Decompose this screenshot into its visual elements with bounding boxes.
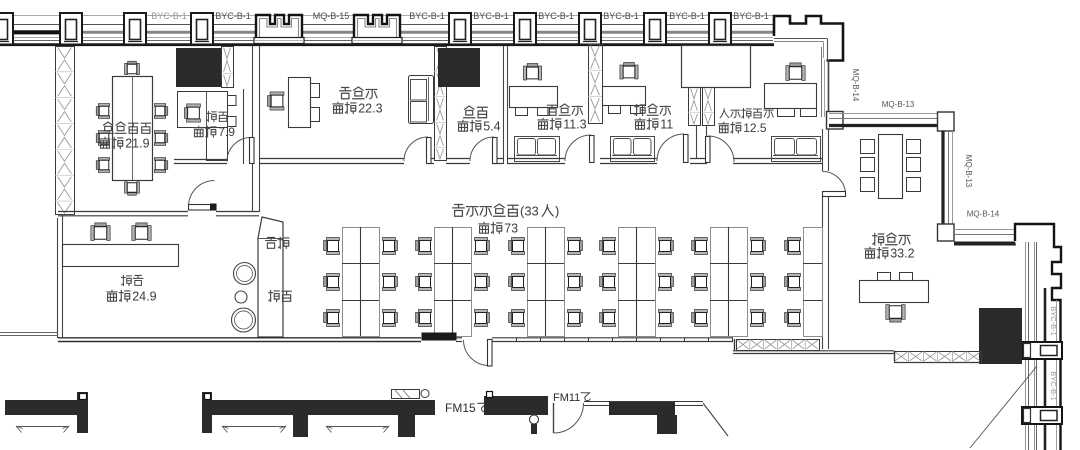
svg-text:22.3: 22.3 (358, 102, 382, 116)
svg-text:): ) (555, 204, 559, 219)
svg-text:BYC-B-1: BYC-B-1 (1049, 371, 1058, 401)
svg-text:BYC-B-1: BYC-B-1 (1049, 306, 1058, 336)
svg-text:33.2: 33.2 (890, 247, 914, 261)
svg-text:21.9: 21.9 (125, 137, 149, 151)
svg-text:BYC-B-1: BYC-B-1 (603, 11, 639, 21)
svg-text:BYC-B-1: BYC-B-1 (733, 11, 769, 21)
svg-text:5.4: 5.4 (483, 120, 500, 134)
svg-text:FM15: FM15 (445, 401, 476, 415)
svg-text:73: 73 (504, 222, 518, 236)
svg-text:12.5: 12.5 (743, 121, 767, 135)
svg-text:BYC-B-1: BYC-B-1 (215, 11, 251, 21)
svg-text:11.3: 11.3 (563, 118, 586, 132)
svg-text:MQ-B-15: MQ-B-15 (313, 11, 350, 21)
svg-text:MQ-B-13: MQ-B-13 (964, 155, 973, 188)
svg-text:BYC-B-1: BYC-B-1 (538, 11, 574, 21)
svg-text:BYC-B-1: BYC-B-1 (473, 11, 509, 21)
svg-text:11: 11 (660, 118, 673, 132)
svg-text:BYC-B-1: BYC-B-1 (151, 11, 187, 21)
svg-text:7.9: 7.9 (218, 125, 235, 139)
svg-text:(33: (33 (520, 204, 539, 219)
svg-text:BYC-B-1: BYC-B-1 (409, 11, 445, 21)
svg-text:FM11: FM11 (553, 392, 580, 404)
svg-text:24.9: 24.9 (132, 290, 156, 304)
svg-text:MQ-B-14: MQ-B-14 (967, 210, 1000, 219)
svg-text:BYC-B-1: BYC-B-1 (669, 11, 705, 21)
svg-text:MQ-B-13: MQ-B-13 (882, 100, 915, 109)
svg-text:MQ-B-14: MQ-B-14 (851, 69, 860, 102)
